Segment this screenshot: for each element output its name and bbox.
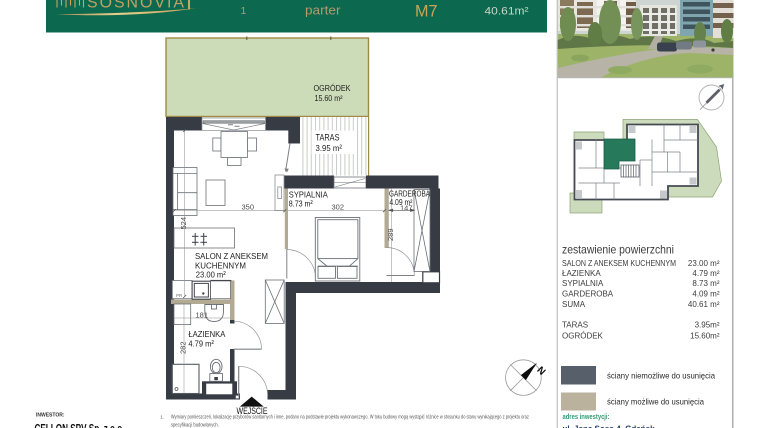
svg-text:SUMA: SUMA <box>562 300 586 309</box>
svg-text:23.00 m²: 23.00 m² <box>688 259 720 268</box>
svg-text:23.00 m²: 23.00 m² <box>196 269 226 279</box>
svg-text:282: 282 <box>179 341 188 354</box>
svg-text:4.79 m²: 4.79 m² <box>692 269 719 278</box>
svg-text:3.95 m²: 3.95 m² <box>316 143 343 153</box>
svg-text:3.95m²: 3.95m² <box>695 321 720 330</box>
svg-text:SALON Z ANEKSEM KUCHENNYM: SALON Z ANEKSEM KUCHENNYM <box>562 259 676 268</box>
svg-text:4.09 m²: 4.09 m² <box>389 198 412 207</box>
svg-text:specyfikacji budowlanych.: specyfikacji budowlanych. <box>171 423 219 428</box>
svg-text:1.: 1. <box>160 415 164 420</box>
svg-text:524: 524 <box>179 217 188 230</box>
svg-text:parter: parter <box>305 3 341 18</box>
svg-text:15.60 m²: 15.60 m² <box>315 94 343 103</box>
svg-text:SYPIALNIA: SYPIALNIA <box>562 279 604 288</box>
svg-text:SOSNOVIA: SOSNOVIA <box>87 0 186 11</box>
svg-text:ściany możliwe do usunięcia: ściany możliwe do usunięcia <box>607 397 704 407</box>
svg-text:CELLON SPV Sp. z o.o.: CELLON SPV Sp. z o.o. <box>35 422 125 428</box>
svg-text:ŁAZIENKA: ŁAZIENKA <box>562 269 601 278</box>
svg-text:302: 302 <box>332 203 345 212</box>
svg-text:181: 181 <box>196 310 209 319</box>
svg-text:GARDEROBA: GARDEROBA <box>562 290 614 299</box>
svg-text:ul. Jana Soso 4, Gdańsk: ul. Jana Soso 4, Gdańsk <box>563 425 656 428</box>
svg-text:zestawienie powierzchni: zestawienie powierzchni <box>562 243 674 257</box>
svg-text:M7: M7 <box>415 3 438 21</box>
svg-text:8.73 m²: 8.73 m² <box>289 199 313 209</box>
svg-text:1: 1 <box>241 5 247 17</box>
svg-text:TARAS: TARAS <box>316 133 340 143</box>
svg-text:40.61 m²: 40.61 m² <box>688 300 720 309</box>
svg-text:PR: PR <box>176 293 183 298</box>
svg-text:ściany niemożliwe do usunięcia: ściany niemożliwe do usunięcia <box>607 371 715 381</box>
svg-text:350: 350 <box>242 203 255 212</box>
svg-text:adres inwestycji:: adres inwestycji: <box>563 412 610 421</box>
svg-text:OGRÓDEK: OGRÓDEK <box>314 83 351 93</box>
svg-text:Wymiary pomieszczeń, lokalizac: Wymiary pomieszczeń, lokalizację przybor… <box>171 415 529 421</box>
svg-text:15.60m²: 15.60m² <box>690 332 720 341</box>
svg-text:8.73 m²: 8.73 m² <box>692 279 719 288</box>
svg-text:4.09 m²: 4.09 m² <box>692 290 719 299</box>
svg-text:4.79 m²: 4.79 m² <box>188 338 214 348</box>
svg-text:SALON Z ANEKSEM: SALON Z ANEKSEM <box>195 251 268 261</box>
svg-text:OGRÓDEK: OGRÓDEK <box>562 332 604 341</box>
svg-text:INWESTOR:: INWESTOR: <box>36 413 65 419</box>
svg-text:289: 289 <box>386 228 395 241</box>
svg-text:TARAS: TARAS <box>562 321 588 330</box>
svg-text:40.61m²: 40.61m² <box>485 5 529 17</box>
